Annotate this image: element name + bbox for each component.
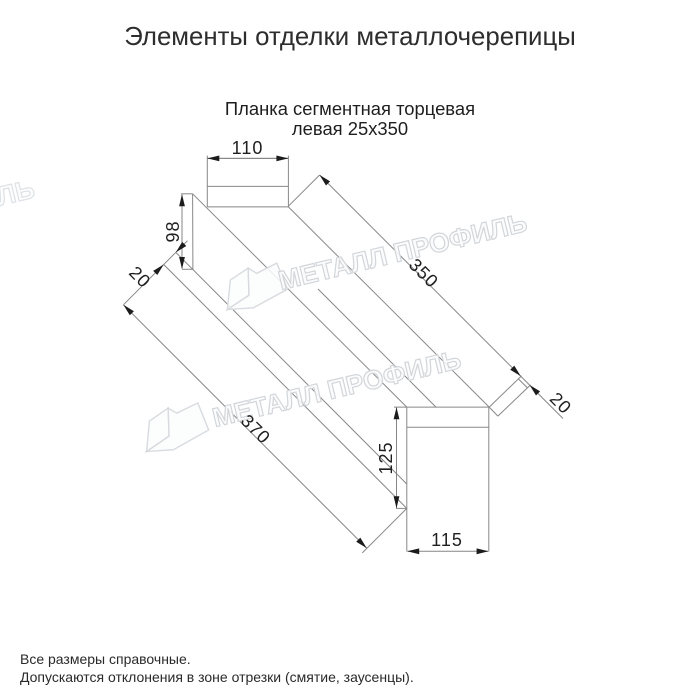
svg-text:МЕТАЛЛ ПРОФИЛЬ: МЕТАЛЛ ПРОФИЛЬ: [275, 207, 530, 296]
svg-text:98: 98: [163, 220, 183, 242]
svg-text:110: 110: [232, 138, 264, 158]
svg-text:ФИЛЬ: ФИЛЬ: [0, 174, 37, 222]
svg-text:125: 125: [376, 441, 396, 474]
svg-text:20: 20: [546, 388, 576, 418]
svg-text:20: 20: [125, 262, 155, 292]
svg-text:115: 115: [431, 530, 463, 550]
